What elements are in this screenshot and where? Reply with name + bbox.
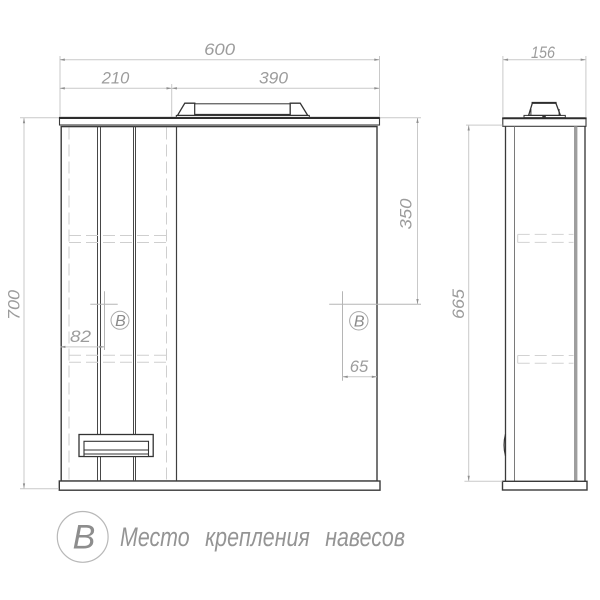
svg-text:В: В (73, 519, 96, 557)
svg-text:700: 700 (6, 289, 24, 320)
svg-text:600: 600 (204, 41, 236, 59)
svg-text:82: 82 (70, 328, 91, 346)
svg-text:Место крепления навесов: Место крепления навесов (120, 522, 405, 552)
svg-text:В: В (115, 313, 126, 330)
svg-text:665: 665 (450, 288, 468, 319)
svg-text:350: 350 (398, 198, 416, 230)
svg-text:В: В (354, 314, 365, 331)
svg-text:156: 156 (531, 44, 556, 62)
svg-text:65: 65 (350, 358, 369, 376)
svg-text:390: 390 (259, 70, 289, 88)
svg-text:210: 210 (101, 70, 130, 88)
